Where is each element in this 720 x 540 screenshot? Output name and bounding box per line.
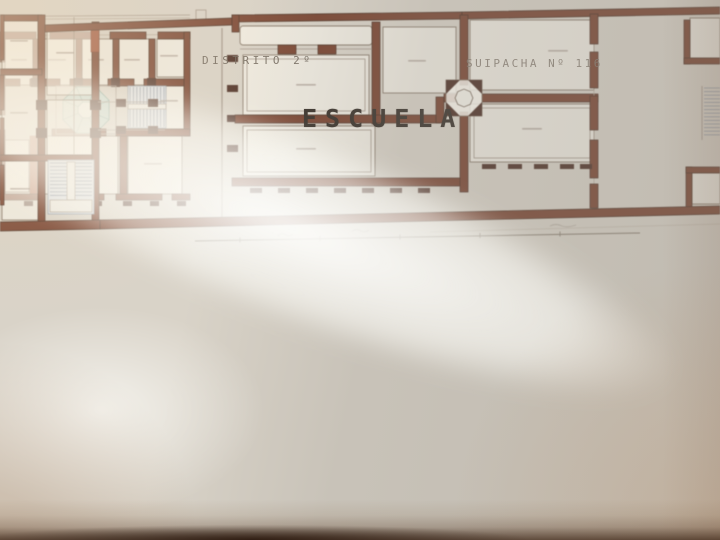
address-label: SUIPACHA Nº 116 — [466, 57, 603, 70]
plan-title: ESCUELA — [302, 104, 463, 133]
scale-bar — [195, 225, 640, 243]
right-wing-staircase — [702, 86, 720, 140]
ground-plan-double-staircase — [48, 160, 94, 214]
district-label: DISTRITO 2º — [202, 54, 313, 67]
photo-of-architectural-plan: DISTRITO 2º ESCUELA SUIPACHA Nº 116 — [0, 0, 720, 540]
